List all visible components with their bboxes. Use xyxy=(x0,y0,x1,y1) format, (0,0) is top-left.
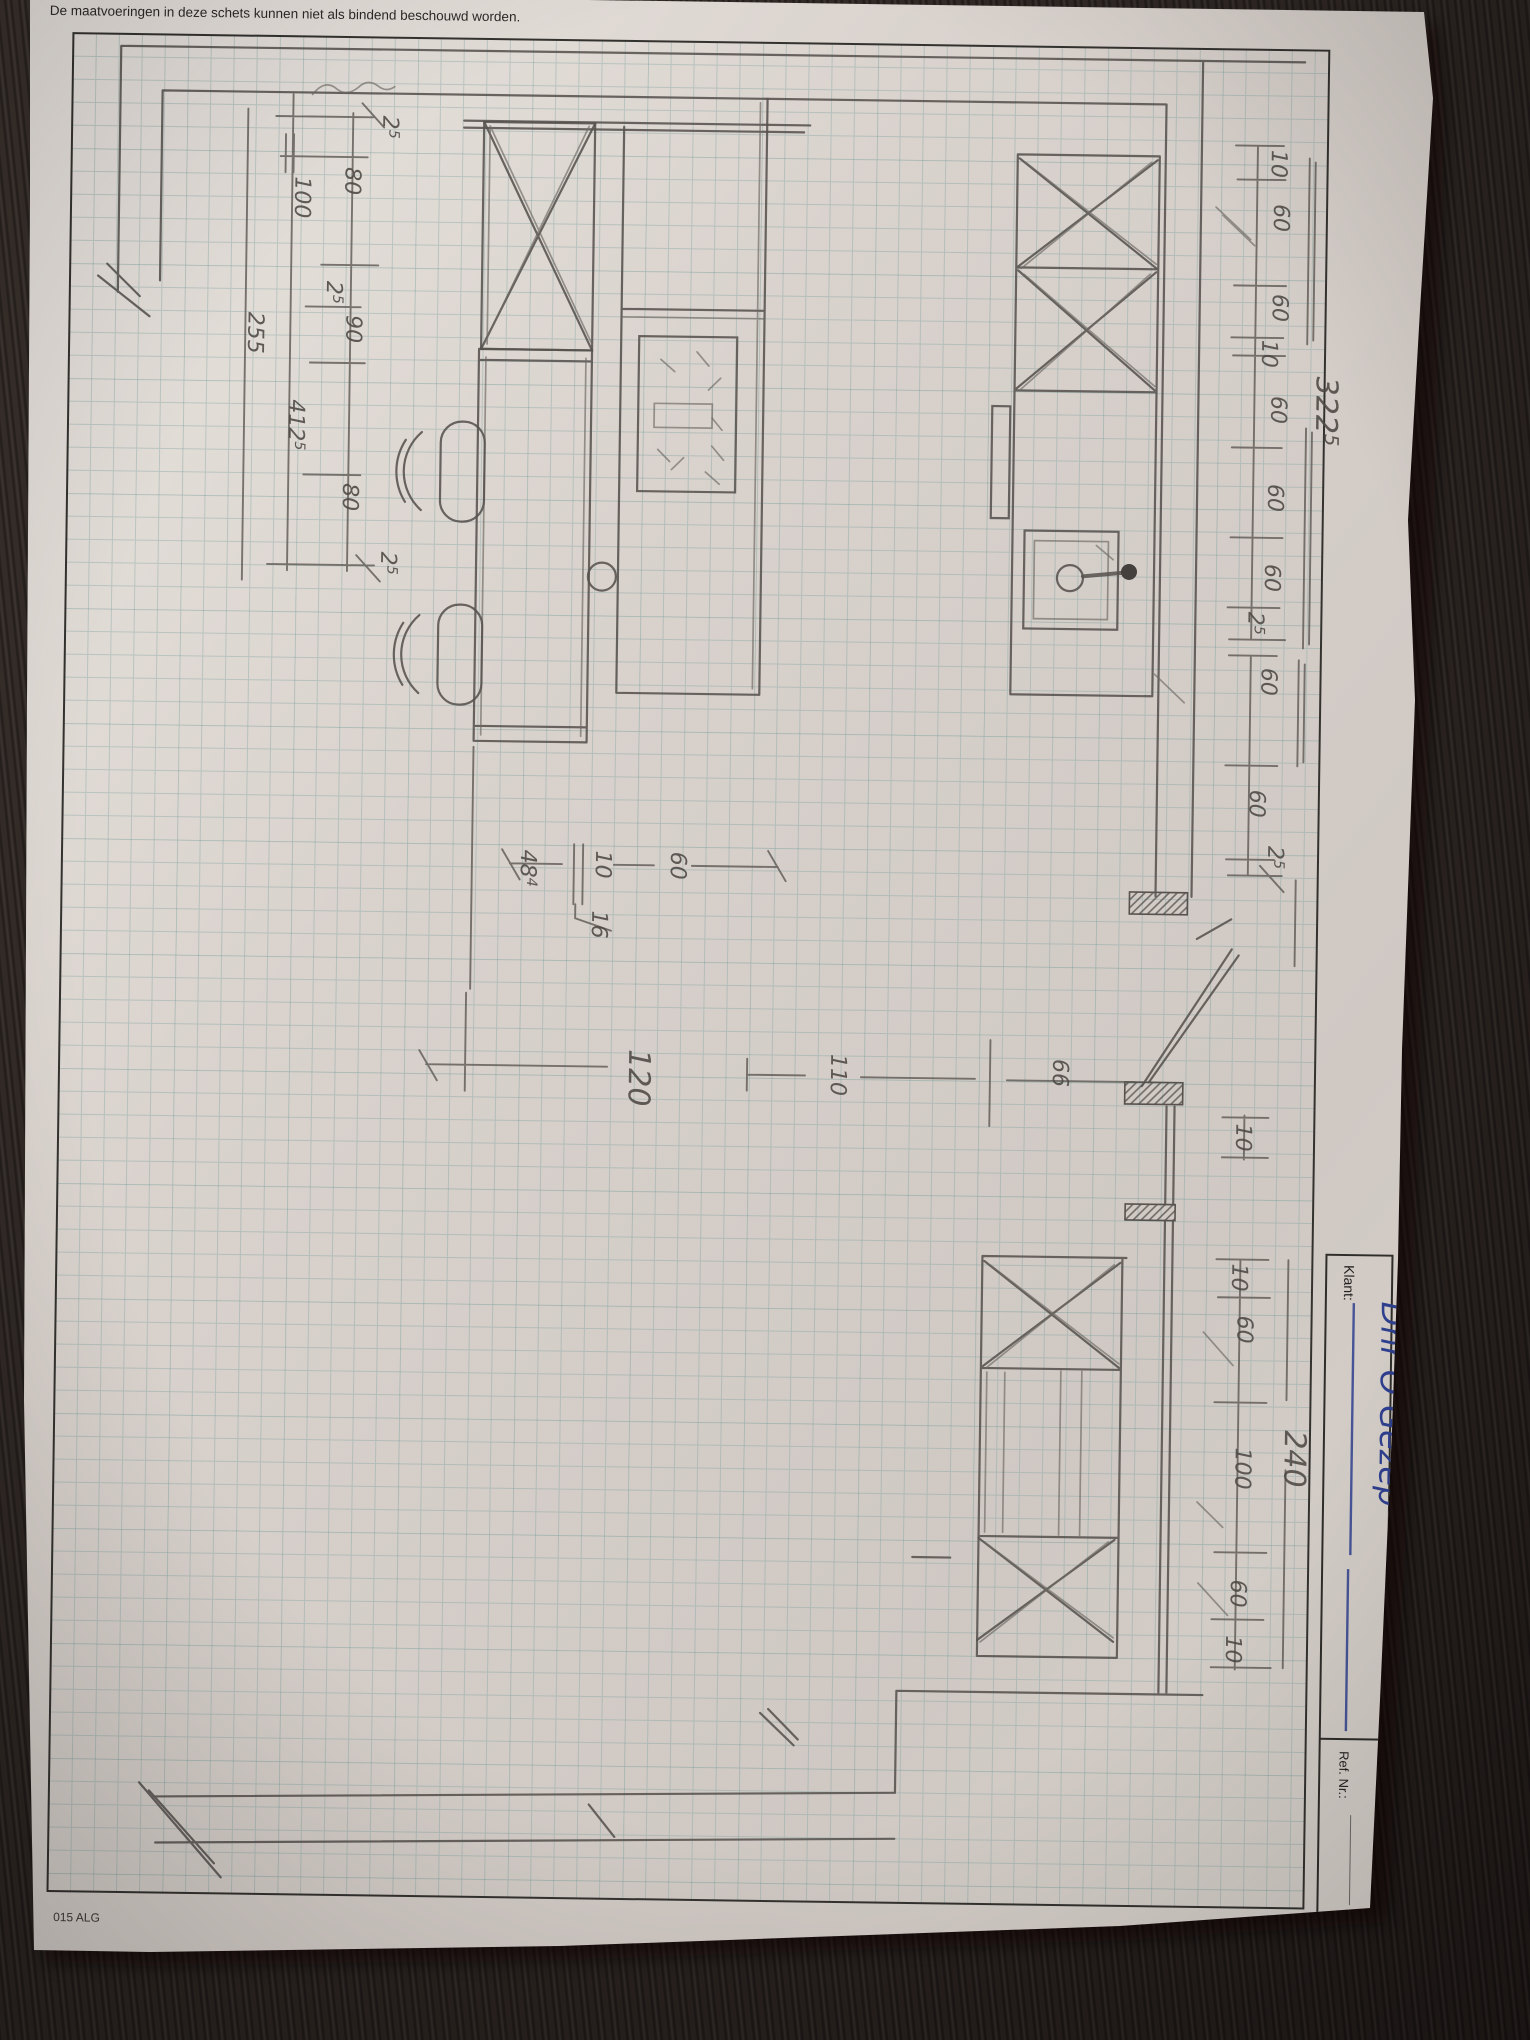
photo-vignette xyxy=(0,0,1530,2040)
photo-kitchen-sketch: De maatvoeringen in deze schets kunnen n… xyxy=(0,0,1530,2040)
sketch-photo-svg: De maatvoeringen in deze schets kunnen n… xyxy=(0,0,1530,2040)
